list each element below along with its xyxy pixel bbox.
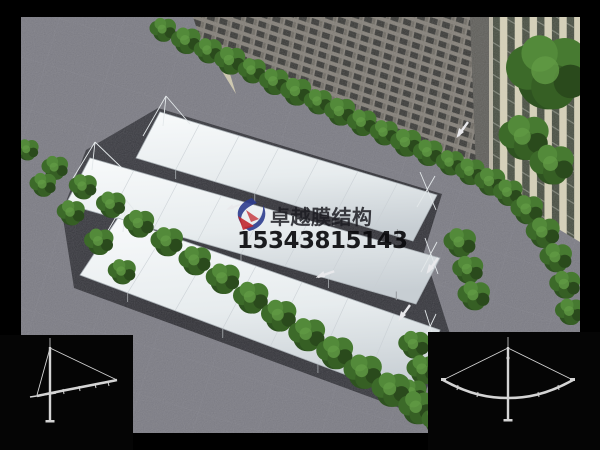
scene-render: 卓越膜结构 15343815143	[0, 0, 600, 450]
frame-diagram-left	[0, 335, 133, 450]
brand-text: 卓越膜结构	[270, 205, 373, 229]
diagram-panel	[0, 335, 133, 450]
diagram-panel	[428, 332, 600, 450]
promo-render-page: 卓越膜结构 15343815143	[0, 0, 600, 450]
frame-diagram-right	[428, 332, 600, 450]
phone-text: 15343815143	[237, 228, 408, 254]
